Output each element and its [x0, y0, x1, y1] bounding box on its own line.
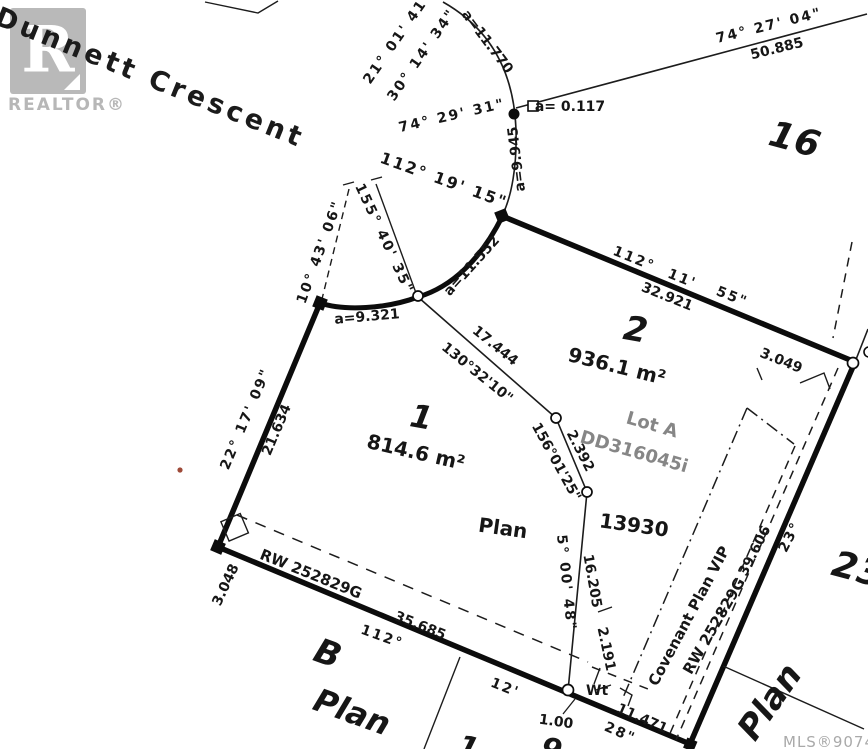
tick-b: [343, 182, 354, 185]
boundary-west: [218, 303, 320, 547]
open-post-arc-junction: [413, 291, 423, 301]
found-post-dot: [509, 109, 520, 120]
open-post-interior-1: [551, 413, 561, 423]
boundary-north: [502, 216, 855, 362]
line-74-27-04: [516, 14, 867, 108]
survey-plan-page: R REALTOR® MLS®907448 Dunnett Crescent 2…: [0, 0, 868, 749]
tick-a: [371, 177, 382, 180]
rw-jog-tick: [594, 668, 600, 684]
top-parcel-corner-line: [205, 1, 278, 13]
red-speck: [177, 467, 182, 472]
witness-post-label: Wt: [586, 683, 608, 699]
rw-dashed-south: [237, 515, 588, 662]
boundary-extension-ne: [855, 329, 868, 362]
covenant-dashdot-top: [747, 408, 794, 444]
realtor-logo-leg: [64, 74, 80, 90]
mls-number: MLS®907448: [783, 733, 868, 749]
open-post-edge-clipped: [864, 347, 868, 357]
open-post-wt: [563, 685, 574, 696]
tick-2191-top: [598, 607, 612, 612]
post-square-nw: [312, 295, 328, 311]
leader-1-00: [563, 699, 575, 714]
open-post-ne-corner: [848, 358, 859, 369]
tick-3049: [757, 368, 762, 380]
lower-left-parcel-line: [424, 657, 460, 749]
boundary-arc-9321: [320, 297, 418, 308]
realtor-wordmark: REALTOR®: [8, 95, 126, 115]
bracket-3049: [800, 373, 830, 389]
post-square-sw: [210, 539, 226, 555]
arc-0-117: a= 0.117: [535, 99, 605, 115]
rw-dashed-east-upper: [833, 242, 852, 338]
